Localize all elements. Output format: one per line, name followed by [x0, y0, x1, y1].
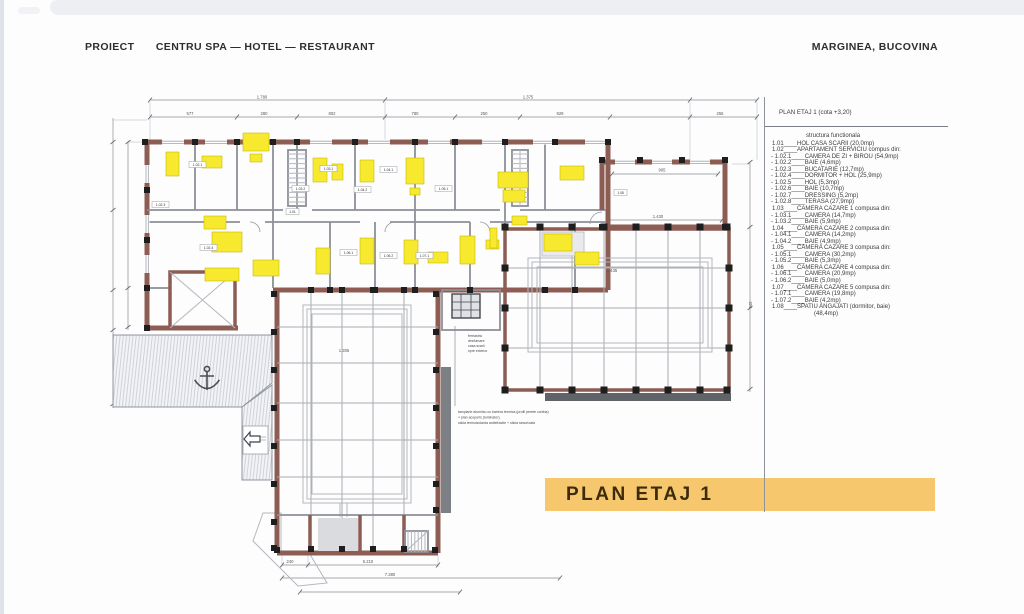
dim-overall-right: 1.375: [523, 95, 534, 100]
svg-text:1.07.1: 1.07.1: [420, 254, 430, 258]
furniture-highlights: [166, 133, 599, 281]
room-label: 1.04.1: [380, 167, 397, 173]
annotations: fereastra desfumare casa scarii spre ext…: [455, 326, 549, 425]
dim-segment: 280: [261, 111, 269, 116]
title-banner: PLAN ETAJ 1: [545, 478, 935, 511]
room-label: 1.02.4: [200, 245, 217, 251]
svg-text:spre exterior: spre exterior: [468, 349, 488, 353]
svg-text:casa scarii: casa scarii: [468, 344, 485, 348]
legend-title: PLAN ETAJ 1 (cota +3,20): [779, 109, 852, 116]
dim-segment: 929: [557, 111, 565, 116]
pool-hall: 1.305: [277, 290, 451, 553]
svg-text:1.06.2: 1.06.2: [384, 254, 394, 258]
dim-right-side: 945: [748, 301, 753, 309]
room-label: 1.02.3: [152, 202, 169, 208]
svg-text:1.04.2: 1.04.2: [358, 188, 368, 192]
svg-text:desfumare: desfumare: [468, 339, 485, 343]
bath-room-fill: [318, 518, 358, 551]
legend-item: (48,4mp): [814, 311, 954, 318]
svg-text:1.02.3: 1.02.3: [156, 203, 166, 207]
svg-text:1.02.4: 1.02.4: [204, 246, 214, 250]
room-label: 1.06.2: [380, 253, 397, 259]
svg-text:sticla termoizolanta antiefrac: sticla termoizolanta antiefractie + stic…: [458, 421, 535, 425]
window-note: fereastra desfumare casa scarii spre ext…: [468, 334, 488, 353]
room-label: 1.01: [286, 209, 299, 215]
legend-panel: structura functionala 1.01____HOL CASA S…: [772, 133, 954, 317]
svg-text:1.05.1: 1.05.1: [439, 187, 449, 191]
svg-text:1.02.1: 1.02.1: [193, 163, 203, 167]
separator-line: [764, 97, 765, 512]
dim-segment: 802: [329, 111, 337, 116]
dim-segment: 255: [717, 111, 725, 116]
banner-title: PLAN ETAJ 1: [545, 478, 935, 511]
dim-bottom: 7.380: [385, 572, 396, 577]
dim-segment: 577: [187, 111, 195, 116]
room-label: 1.08: [614, 190, 627, 196]
dim-bottom: 240: [287, 559, 295, 564]
room-label: 1.07.1: [416, 253, 433, 259]
room-label: 1.04.2: [354, 187, 371, 193]
room-label: 1.03.1: [320, 166, 337, 172]
room-label: 1.06.1: [340, 250, 357, 256]
entrance-arrow-icon: [243, 426, 268, 454]
connector-room: [442, 290, 500, 330]
dim-pool: 1.305: [339, 348, 350, 353]
left-terrace-hatch: [113, 335, 327, 586]
dim-room108-depth: 1.430: [653, 214, 664, 219]
svg-text:1.06.1: 1.06.1: [344, 251, 354, 255]
dim-overall-left: 1.780: [257, 95, 268, 100]
room-label: 1.02.1: [189, 162, 206, 168]
legend-subtitle: structura functionala: [806, 133, 954, 140]
svg-text:fereastra: fereastra: [468, 334, 482, 338]
svg-text:tamplarie aluminiu cu bariera: tamplarie aluminiu cu bariera termica (p…: [458, 410, 549, 414]
svg-text:1.01: 1.01: [289, 210, 296, 214]
room-label: 1.05.1: [435, 186, 452, 192]
skylight-grid: [452, 294, 480, 318]
dim-segment: 250: [481, 111, 489, 116]
dim-room108-width: 905: [659, 168, 667, 173]
right-pergola: 1.435: [505, 227, 731, 401]
room-label: 1.03.2: [292, 186, 309, 192]
stairs-main: [288, 150, 306, 206]
dim-bottom: 5.210: [363, 559, 374, 564]
svg-text:1.03.1: 1.03.1: [324, 167, 334, 171]
svg-text:1.08: 1.08: [617, 191, 624, 195]
stairs-basement: [405, 531, 428, 552]
dim-terrace: 1.435: [607, 268, 618, 273]
glazing-note: tamplarie aluminiu cu bariera termica (p…: [458, 410, 549, 425]
gray-strip: [441, 367, 451, 513]
legend-divider: [765, 126, 948, 127]
pergola-bottom-strip: [545, 393, 731, 401]
svg-text:+ plan acoperis (luminator),: + plan acoperis (luminator),: [458, 416, 501, 420]
svg-text:1.04.1: 1.04.1: [384, 168, 394, 172]
dim-segment: 780: [412, 111, 420, 116]
svg-text:1.03.2: 1.03.2: [296, 187, 306, 191]
